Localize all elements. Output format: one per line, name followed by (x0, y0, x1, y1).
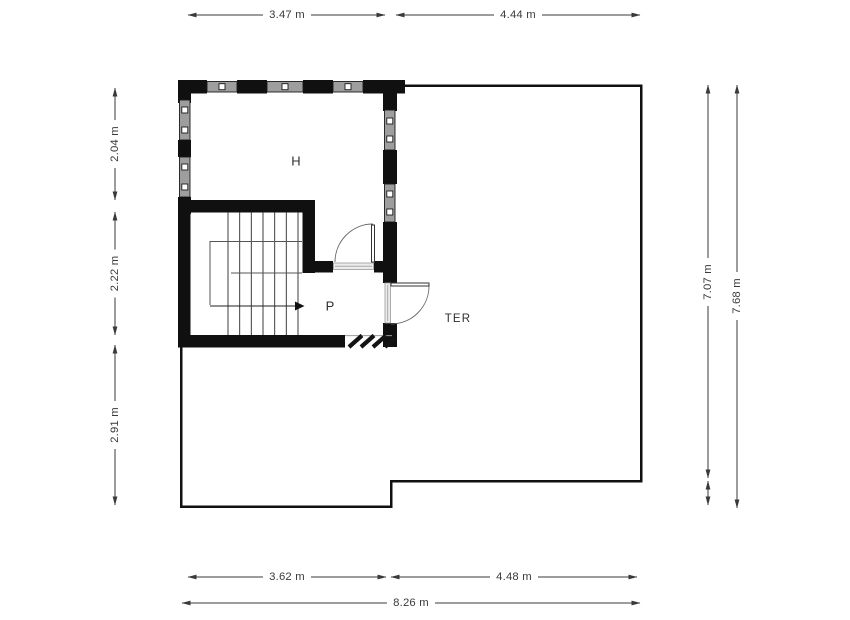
window (385, 110, 396, 150)
door-leaf (391, 283, 429, 286)
window-pane (387, 118, 393, 124)
door-leaf (372, 225, 375, 262)
floor-plan: H P TER 3.47 m 4.44 m 2.04 m 2.22 m 2.91… (0, 0, 850, 620)
dim-left-middle: 2.22 m (109, 212, 122, 335)
dim-label: 2.04 m (109, 126, 121, 162)
window-pane (182, 127, 188, 133)
window-pane (219, 84, 225, 90)
window-pane (182, 164, 188, 170)
wall-segment (390, 480, 643, 483)
window-pane (282, 84, 288, 90)
window-pane (387, 209, 393, 215)
window-pane (387, 191, 393, 197)
room-labels: H P TER (291, 154, 471, 326)
wall-segment (180, 347, 183, 508)
window-pane (345, 84, 351, 90)
window (385, 184, 396, 222)
dim-right-outer: 7.68 m (731, 85, 744, 508)
dim-bottom-total: 8.26 m (182, 597, 640, 610)
dim-label: 3.47 m (269, 9, 305, 21)
wall-segment (303, 206, 316, 273)
window (180, 100, 191, 140)
wall-pier (383, 150, 397, 184)
dim-label: 4.44 m (500, 9, 536, 21)
dim-bottom-right: 4.48 m (391, 571, 637, 584)
wall-corner (363, 80, 405, 94)
dim-right-inner: 7.07 m (702, 85, 715, 478)
wall-segment (390, 480, 393, 508)
dim-bottom-left: 3.62 m (188, 571, 386, 584)
wall-segment (178, 212, 191, 347)
dim-label: 2.91 m (109, 407, 121, 443)
room-h-left-wall (178, 100, 191, 214)
wall-segment (178, 335, 345, 348)
wall-pier (178, 140, 191, 157)
room-label-ter: TER (445, 313, 472, 325)
wall-corner (383, 93, 397, 111)
dim-label: 7.07 m (702, 264, 714, 300)
dim-label: 3.62 m (269, 571, 305, 583)
dim-label: 2.22 m (109, 256, 121, 292)
stair-direction-arrow-icon (295, 302, 305, 311)
dim-left-upper: 2.04 m (109, 88, 122, 200)
dim-label: 7.68 m (731, 278, 743, 314)
window-pane (182, 184, 188, 190)
wall-pier (303, 80, 333, 94)
dim-label: 8.26 m (393, 597, 429, 609)
dim-left-lower: 2.91 m (109, 345, 122, 505)
wall-corner (178, 80, 207, 94)
window (180, 157, 191, 197)
floor-plan-drawing: H P TER 3.47 m 4.44 m 2.04 m 2.22 m 2.91… (0, 0, 850, 620)
wall-pier (237, 80, 267, 94)
wall-segment (315, 261, 333, 273)
door-h-to-p (334, 224, 375, 270)
door-p-to-ter (385, 283, 429, 324)
window-pane (182, 107, 188, 113)
window-pane (387, 136, 393, 142)
wall-segment (400, 85, 643, 88)
door-swing-arc (391, 286, 429, 324)
room-label-p: P (326, 299, 335, 314)
dim-top-left: 3.47 m (188, 9, 385, 22)
dim-top-right: 4.44 m (396, 9, 640, 22)
door-swing-arc (335, 224, 373, 262)
wall-segment (640, 85, 643, 483)
wall-segment (383, 222, 397, 283)
dim-label: 4.48 m (496, 571, 532, 583)
wall-segment (180, 506, 392, 509)
staircase (210, 212, 305, 335)
wall-segment (178, 200, 315, 213)
wall-segment (374, 261, 383, 273)
terrace-boundary-wall (180, 85, 643, 509)
room-label-h: H (291, 154, 300, 169)
room-h-top-wall (178, 80, 405, 111)
